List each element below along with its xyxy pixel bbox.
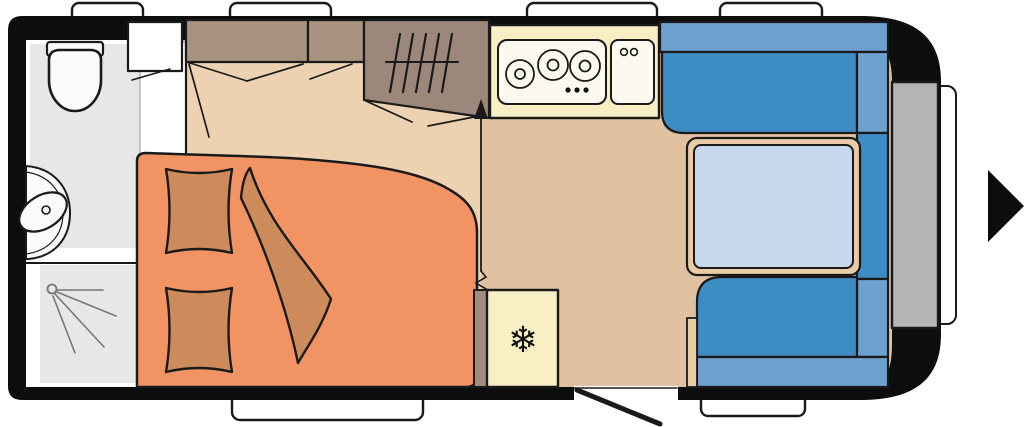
bench-backrest-top bbox=[660, 22, 888, 52]
seat-side-panel bbox=[687, 318, 697, 387]
bench-seat-top bbox=[662, 52, 857, 133]
bench-seat-bottom bbox=[697, 277, 857, 357]
shower-tray bbox=[40, 265, 140, 383]
bench-backrest-bottom bbox=[697, 357, 888, 387]
fridge-partition bbox=[474, 290, 487, 387]
drawbar-gas-box bbox=[892, 82, 938, 328]
pillow bbox=[166, 288, 232, 372]
toilet-icon bbox=[49, 50, 101, 111]
caravan-floor-plan: ❄ bbox=[0, 0, 1024, 427]
dinette-table bbox=[694, 145, 853, 268]
pillow bbox=[166, 169, 232, 253]
side-seat bbox=[857, 133, 888, 279]
snowflake-icon: ❄ bbox=[508, 320, 538, 361]
entrance bbox=[574, 386, 678, 424]
hob-knob bbox=[574, 87, 579, 92]
floor-plan-canvas: ❄ bbox=[0, 0, 1024, 427]
dinette bbox=[660, 22, 888, 387]
overhead-locker bbox=[186, 20, 308, 62]
side-backrest-upper bbox=[857, 52, 888, 133]
side-backrest-lower bbox=[857, 279, 888, 357]
overhead-locker bbox=[308, 20, 364, 62]
bathroom-cabinet bbox=[128, 22, 182, 71]
hob-knob bbox=[583, 87, 588, 92]
hob-knob bbox=[565, 87, 570, 92]
direction-of-travel-arrow-icon bbox=[988, 170, 1024, 242]
